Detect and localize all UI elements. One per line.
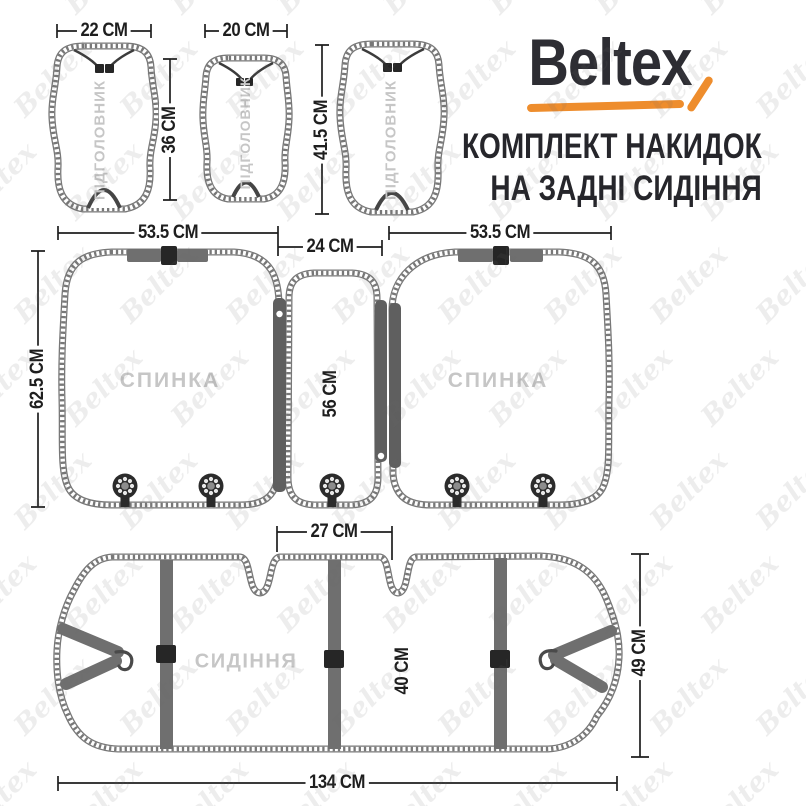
buckle-icon (156, 645, 176, 663)
zipper-strip (389, 303, 401, 468)
dim-headrest-small-width: 20 CM (219, 20, 273, 42)
zipper-strip (375, 300, 387, 462)
seat-cover (57, 556, 619, 749)
cord-lock-icon (383, 63, 392, 72)
dim-backrest-right-width: 53.5 CM (466, 222, 533, 244)
label-headrest-2: ПІДГОЛОВНИК (237, 77, 253, 190)
top-strap (127, 249, 161, 262)
product-title-line1: КОМПЛЕКТ НАКИДОК (462, 126, 762, 168)
brand-logo: Beltex (528, 24, 691, 100)
zipper-pull-icon (378, 453, 384, 459)
buckle-icon (493, 246, 509, 265)
dim-backrest-center-height: 56 CM (320, 367, 342, 421)
dim-headrest-small-height: 36 CM (159, 103, 181, 157)
dim-backrest-left-width: 53.5 CM (134, 222, 201, 244)
buckle-icon (324, 650, 344, 668)
buckle-icon (490, 650, 510, 668)
zipper-strip (273, 298, 286, 492)
dim-seat-side-height: 49 CM (629, 626, 651, 680)
label-headrest-1: ПІДГОЛОВНИК (92, 80, 109, 200)
dim-seat-hump-gap: 27 CM (307, 521, 361, 543)
dim-seat-depth: 40 CM (392, 644, 414, 698)
label-headrest-3: ПІДГОЛОВНИК (383, 80, 400, 200)
product-title: КОМПЛЕКТ НАКИДОК НА ЗАДНІ СИДІННЯ (387, 126, 762, 210)
dim-backrest-height: 62.5 CM (27, 345, 49, 412)
dim-headrest-large-height: 41.5 CM (311, 96, 333, 163)
product-title-line2: НА ЗАДНІ СИДІННЯ (462, 168, 762, 210)
zipper-pull-icon (276, 311, 282, 317)
label-backrest-left: СПИНКА (120, 369, 221, 393)
dim-backrest-center-width: 24 CM (303, 236, 357, 258)
label-backrest-right: СПИНКА (448, 369, 549, 393)
top-strap (458, 249, 493, 262)
buckle-icon (161, 246, 177, 265)
label-seat: СИДІННЯ (195, 651, 297, 674)
cord-lock-icon (95, 64, 104, 73)
dim-headrest-large-width: 22 CM (77, 20, 131, 42)
product-diagram: Beltex КОМПЛЕКТ НАКИДОК НА ЗАДНІ СИДІННЯ… (0, 0, 806, 806)
dim-seat-width: 134 CM (306, 772, 369, 794)
